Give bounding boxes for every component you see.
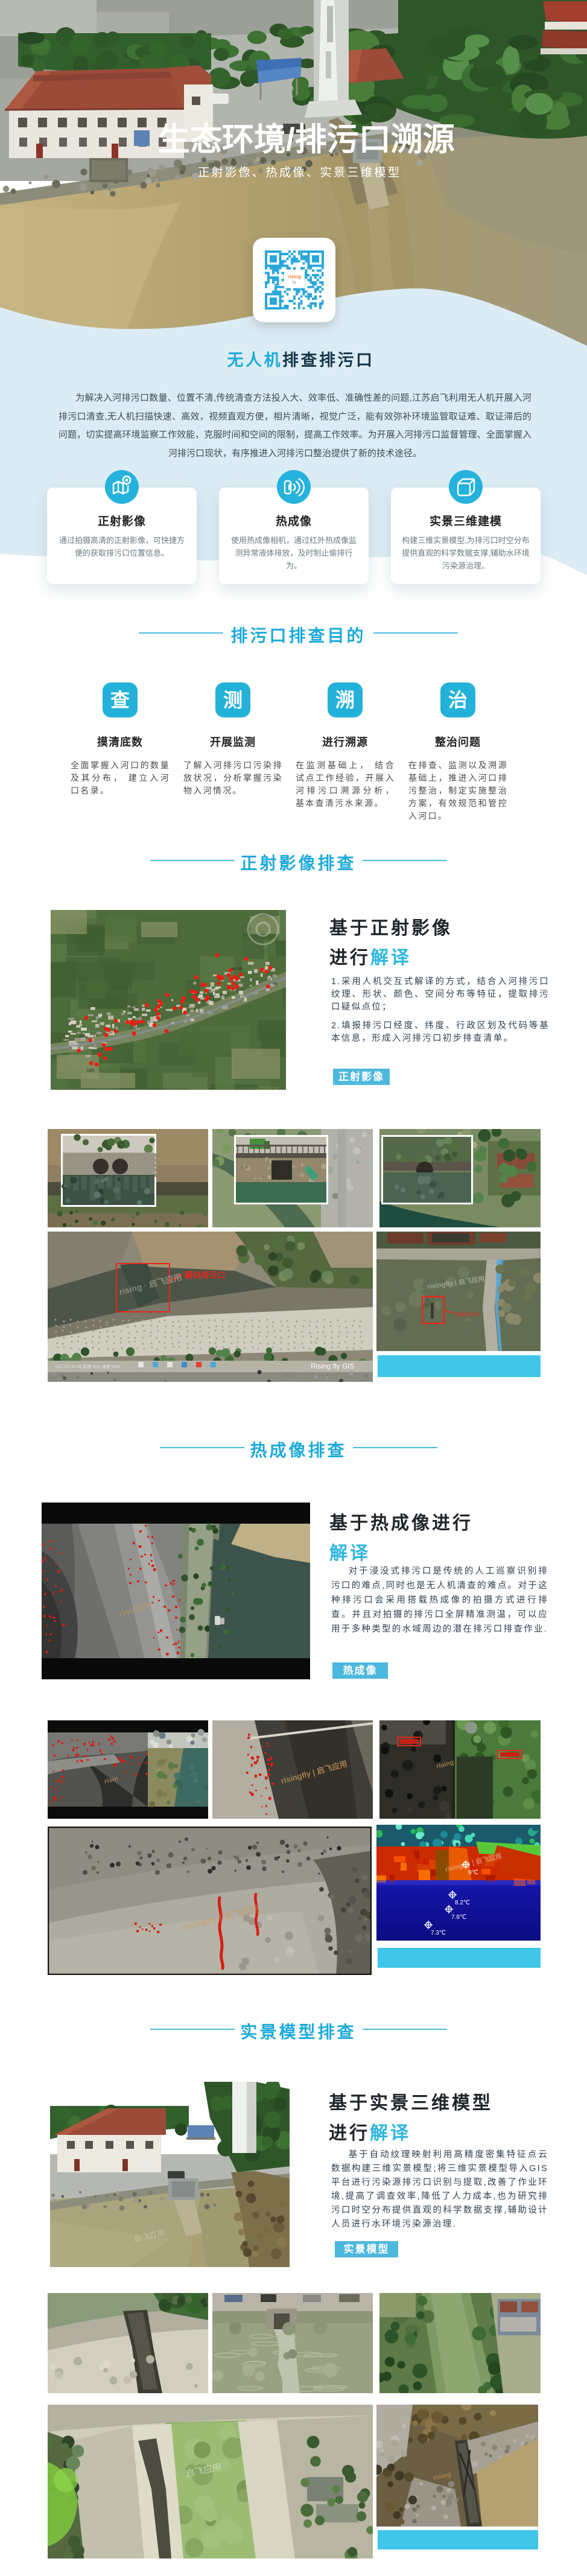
svg-text:fly: fly xyxy=(293,281,296,285)
svg-text:97: 97 xyxy=(80,1035,84,1039)
svg-text:疑似排污口: 疑似排污口 xyxy=(456,1311,480,1317)
svg-text:48 45: 48 45 xyxy=(232,967,243,972)
svg-text:7.3℃: 7.3℃ xyxy=(431,1930,446,1936)
svg-text:7.8℃: 7.8℃ xyxy=(451,1914,466,1921)
svg-text:rising: rising xyxy=(288,274,301,279)
svg-text:8.2℃: 8.2℃ xyxy=(455,1900,470,1906)
svg-text:疑似排污口: 疑似排污口 xyxy=(185,1270,226,1280)
svg-text:9℃: 9℃ xyxy=(468,1869,478,1876)
svg-text:Rising fly GIS: Rising fly GIS xyxy=(311,1362,355,1370)
svg-text:116.123 31.45 高度 31m 速度 5m/s: 116.123 31.45 高度 31m 速度 5m/s xyxy=(55,1364,121,1369)
svg-text:020: 020 xyxy=(87,1069,94,1073)
svg-text:85: 85 xyxy=(273,982,278,987)
